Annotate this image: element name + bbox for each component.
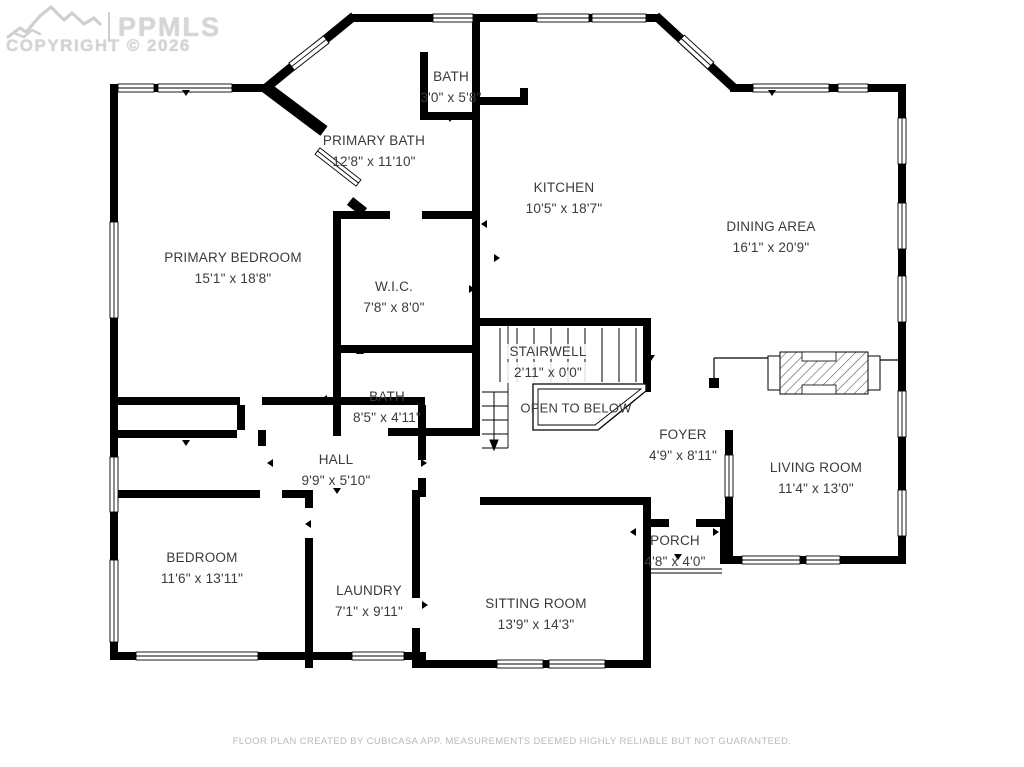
- room-name: KITCHEN: [534, 180, 595, 195]
- room-name: BATH: [369, 389, 405, 404]
- room-label-kitchen: KITCHEN 10'5" x 18'7": [526, 177, 603, 219]
- room-dims: 7'8" x 8'0": [363, 297, 424, 318]
- room-name: LAUNDRY: [336, 583, 402, 598]
- room-label-laundry: LAUNDRY 7'1" x 9'11": [335, 580, 403, 622]
- room-dims: 15'1" x 18'8": [164, 268, 302, 289]
- room-label-foyer: FOYER 4'9" x 8'11": [649, 424, 717, 466]
- room-label-bath-hall: BATH 8'5" x 4'11": [353, 386, 421, 428]
- room-label-hall: HALL 9'9" x 5'10": [302, 449, 371, 491]
- floorplan-drawing: [0, 0, 1024, 767]
- room-dims: 10'5" x 18'7": [526, 198, 603, 219]
- room-label-open-to-below: OPEN TO BELOW: [520, 398, 631, 419]
- room-name: FOYER: [659, 427, 707, 442]
- room-dims: 2'11" x 0'0": [506, 362, 589, 383]
- room-label-sitting-room: SITTING ROOM 13'9" x 14'3": [485, 593, 586, 635]
- room-name: DINING AREA: [726, 219, 815, 234]
- room-name: OPEN TO BELOW: [520, 401, 631, 416]
- room-name: PRIMARY BEDROOM: [164, 250, 302, 265]
- room-dims: 8'5" x 4'11": [353, 407, 421, 428]
- room-dims: 4'9" x 8'11": [649, 445, 717, 466]
- room-dims: 9'9" x 5'10": [302, 470, 371, 491]
- room-dims: 4'8" x 4'0": [644, 551, 705, 572]
- floorplan-page: BATH 3'0" x 5'8" PRIMARY BATH 12'8" x 11…: [0, 0, 1024, 767]
- fireplace-icon: [709, 352, 898, 394]
- room-label-wic: W.I.C. 7'8" x 8'0": [363, 276, 424, 318]
- room-name: STAIRWELL: [506, 344, 589, 359]
- footer-disclaimer: FLOOR PLAN CREATED BY CUBICASA APP. MEAS…: [0, 736, 1024, 747]
- room-label-porch: PORCH 4'8" x 4'0": [644, 530, 705, 572]
- room-dims: 11'4" x 13'0": [770, 478, 862, 499]
- room-name: PRIMARY BATH: [323, 133, 425, 148]
- room-dims: 11'6" x 13'11": [161, 568, 243, 589]
- room-dims: 7'1" x 9'11": [335, 601, 403, 622]
- room-dims: 13'9" x 14'3": [485, 614, 586, 635]
- room-dims: 3'0" x 5'8": [420, 87, 481, 108]
- room-name: HALL: [319, 452, 354, 467]
- room-name: BEDROOM: [166, 550, 237, 565]
- room-label-dining-area: DINING AREA 16'1" x 20'9": [726, 216, 815, 258]
- room-label-bedroom: BEDROOM 11'6" x 13'11": [161, 547, 243, 589]
- watermark: PPMLS COPYRIGHT © 2026: [6, 4, 236, 56]
- room-name: LIVING ROOM: [770, 460, 862, 475]
- ppmls-mountains-icon: [6, 4, 102, 40]
- room-label-stairwell: STAIRWELL 2'11" x 0'0": [506, 341, 589, 383]
- room-name: W.I.C.: [375, 279, 413, 294]
- room-name: BATH: [433, 69, 469, 84]
- room-dims: 12'8" x 11'10": [323, 151, 425, 172]
- room-name: SITTING ROOM: [485, 596, 586, 611]
- room-label-primary-bedroom: PRIMARY BEDROOM 15'1" x 18'8": [164, 247, 302, 289]
- room-label-primary-bath: PRIMARY BATH 12'8" x 11'10": [323, 130, 425, 172]
- room-label-living-room: LIVING ROOM 11'4" x 13'0": [770, 457, 862, 499]
- room-label-bath-top: BATH 3'0" x 5'8": [420, 66, 481, 108]
- room-dims: 16'1" x 20'9": [726, 237, 815, 258]
- room-name: PORCH: [650, 533, 700, 548]
